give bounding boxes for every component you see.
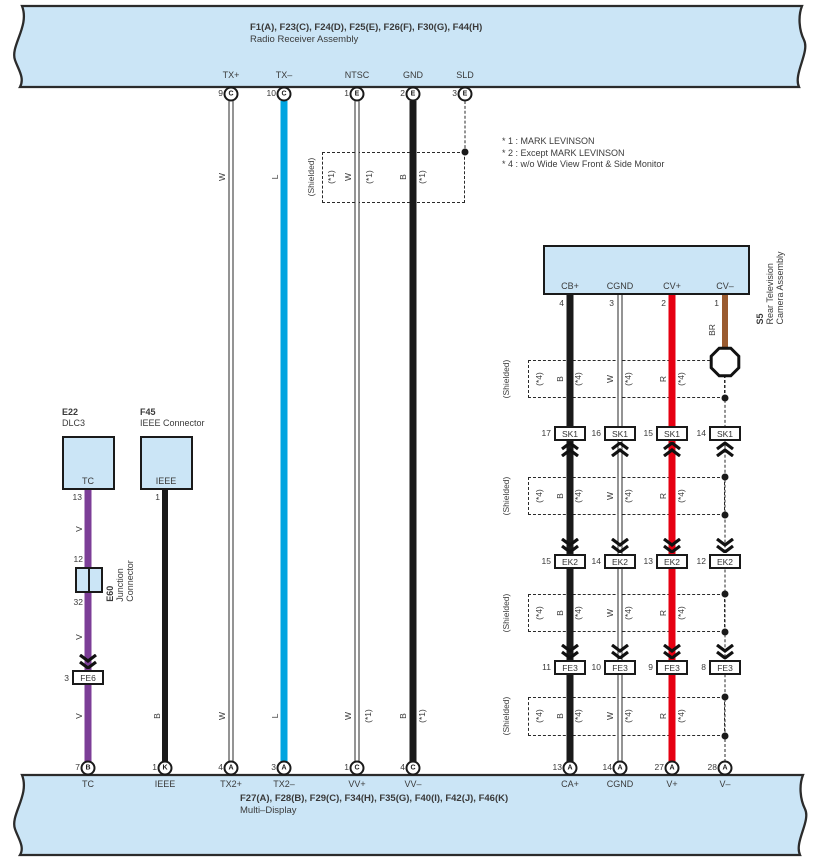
wire-color-label: W: [605, 712, 615, 720]
wire-sld-dashed: [465, 101, 466, 153]
note-wo-wide-view: * 4 : w/o Wide View Front & Side Monitor: [502, 159, 664, 171]
connector-sk1: SK1: [604, 426, 636, 441]
top-pin-connector-circle: E: [458, 87, 473, 102]
connector-sk1: SK1: [656, 426, 688, 441]
bottom-pin-label: TC: [82, 779, 94, 789]
wire-color-label: BR: [707, 324, 717, 336]
camera-id: S5: [755, 251, 765, 324]
junction-dot: [722, 694, 729, 701]
condition-label: (*4): [534, 606, 544, 620]
chevron-up-icon: [609, 442, 631, 457]
bottom-pin-connector-circle: A: [224, 761, 239, 776]
sk1-pin-number: 14: [697, 428, 706, 438]
junction-name-line2: Connector: [125, 560, 135, 602]
condition-label: (*1): [326, 170, 336, 184]
camera-pin-label: CV–: [716, 281, 734, 291]
camera-pin-number: 4: [559, 298, 564, 308]
chevron-up-icon: [559, 442, 581, 457]
junction-dot: [722, 733, 729, 740]
bottom-pin-connector-circle: A: [613, 761, 628, 776]
top-pin-connector-circle: C: [224, 87, 239, 102]
wire-ieee-black: [162, 489, 168, 762]
condition-label: (*4): [534, 489, 544, 503]
bottom-pin-number: 14: [603, 762, 612, 772]
chevron-down-icon: [714, 644, 736, 659]
fe3-pin-number: 9: [648, 662, 653, 672]
sk1-pin-number: 17: [542, 428, 551, 438]
chevron-up-icon: [714, 442, 736, 457]
wire-color-label: V: [74, 526, 84, 532]
condition-label: (*1): [417, 170, 427, 184]
fe6-pin-number: 3: [64, 673, 69, 683]
chevron-down-icon: [609, 644, 631, 659]
wire-color-label: B: [152, 713, 162, 719]
wire-color-label: B: [555, 713, 565, 719]
junction-dot: [722, 512, 729, 519]
wire-color-label: W: [343, 712, 353, 720]
junction-dot: [722, 629, 729, 636]
shielded-label: (Shielded): [501, 360, 511, 399]
condition-label: (*4): [534, 372, 544, 386]
wire-color-label: R: [658, 610, 668, 616]
bottom-pin-label: V–: [719, 779, 730, 789]
junction-dot: [462, 149, 469, 156]
top-pin-connector-circle: C: [277, 87, 292, 102]
ek2-pin-number: 12: [697, 556, 706, 566]
condition-label: (*4): [573, 606, 583, 620]
wire-color-label: R: [658, 376, 668, 382]
top-pin-number: 1: [344, 88, 349, 98]
top-pin-number: 3: [452, 88, 457, 98]
junction-id: E60: [105, 560, 115, 602]
condition-label: (*4): [676, 709, 686, 723]
wire-tx-minus-cyan: [281, 101, 288, 762]
bottom-pin-number: 1: [152, 762, 157, 772]
wire-color-label: L: [270, 175, 280, 180]
connector-fe3: FE3: [709, 660, 741, 675]
chevron-down-icon: [77, 654, 99, 669]
condition-label: (*4): [623, 709, 633, 723]
wire-ntsc-white: [355, 101, 360, 762]
sk1-pin-number: 16: [592, 428, 601, 438]
chevron-down-icon: [609, 538, 631, 553]
wire-color-label: W: [217, 173, 227, 181]
notes-block: * 1 : MARK LEVINSON * 2 : Except MARK LE…: [502, 136, 664, 171]
junction-pin-top: 12: [74, 554, 83, 564]
wire-color-label: W: [605, 375, 615, 383]
connector-ek2: EK2: [604, 554, 636, 569]
top-pin-label: TX+: [223, 70, 240, 80]
wire-color-label: V: [74, 634, 84, 640]
chevron-down-icon: [661, 644, 683, 659]
bottom-pin-number: 1: [344, 762, 349, 772]
shielded-label: (Shielded): [501, 594, 511, 633]
camera-pin-label: CV+: [663, 281, 681, 291]
top-pin-label: NTSC: [345, 70, 370, 80]
junction-pin-bottom: 32: [74, 597, 83, 607]
wire-color-label: L: [270, 714, 280, 719]
wire-color-label: W: [217, 712, 227, 720]
f45-terminal-label: IEEE: [156, 476, 177, 486]
bottom-pin-connector-circle: K: [158, 761, 173, 776]
top-pin-number: 10: [267, 88, 276, 98]
bottom-pin-connector-circle: C: [406, 761, 421, 776]
condition-label: (*4): [573, 489, 583, 503]
top-pin-number: 9: [218, 88, 223, 98]
fe3-pin-number: 8: [701, 662, 706, 672]
condition-label: (*4): [623, 372, 633, 386]
condition-label: (*4): [534, 709, 544, 723]
radio-receiver-banner: [0, 0, 814, 95]
f45-pin-number: 1: [155, 492, 160, 502]
chevron-down-icon: [559, 538, 581, 553]
camera-assembly-name: S5 Rear Television Camera Assembly: [755, 251, 785, 324]
bottom-pin-connector-circle: C: [350, 761, 365, 776]
bottom-pin-connector-circle: A: [563, 761, 578, 776]
connector-sk1: SK1: [554, 426, 586, 441]
connector-ek2: EK2: [554, 554, 586, 569]
bottom-pin-label: IEEE: [155, 779, 176, 789]
camera-name-line2: Camera Assembly: [775, 251, 785, 324]
wire-gnd-black: [410, 101, 417, 762]
camera-name-line1: Rear Television: [765, 251, 775, 324]
shielded-label: (Shielded): [306, 158, 316, 197]
bottom-pin-number: 28: [708, 762, 717, 772]
ek2-pin-number: 13: [644, 556, 653, 566]
junction-dot: [722, 591, 729, 598]
connector-sk1: SK1: [709, 426, 741, 441]
camera-pin-number: 1: [714, 298, 719, 308]
octagon-connector-icon: [708, 345, 742, 379]
bottom-pin-connector-circle: A: [277, 761, 292, 776]
wire-color-label: B: [398, 713, 408, 719]
chevron-down-icon: [661, 538, 683, 553]
wire-color-label: R: [658, 713, 668, 719]
condition-label: (*1): [364, 170, 374, 184]
connector-fe3: FE3: [656, 660, 688, 675]
bottom-pin-label: CGND: [607, 779, 634, 789]
bottom-banner-title: F27(A), F28(B), F29(C), F34(H), F35(G), …: [240, 793, 508, 804]
wire-cv-minus-brown: [722, 294, 728, 349]
shielded-label: (Shielded): [501, 477, 511, 516]
junction-dot: [722, 395, 729, 402]
condition-label: (*1): [417, 709, 427, 723]
ek2-pin-number: 14: [592, 556, 601, 566]
junction-dot: [722, 474, 729, 481]
bottom-pin-connector-circle: A: [665, 761, 680, 776]
bottom-banner-subtitle: Multi–Display: [240, 805, 297, 816]
bottom-pin-label: VV+: [348, 779, 365, 789]
top-pin-connector-circle: E: [406, 87, 421, 102]
wire-color-label: W: [343, 173, 353, 181]
top-pin-number: 2: [400, 88, 405, 98]
top-pin-label: SLD: [456, 70, 474, 80]
wire-cgnd-white: [618, 294, 623, 762]
e22-name: DLC3: [62, 418, 85, 428]
wire-v-plus-red: [669, 294, 676, 762]
camera-pin-label: CB+: [561, 281, 579, 291]
wire-color-label: W: [605, 609, 615, 617]
chevron-down-icon: [559, 644, 581, 659]
wire-tx-plus-white: [229, 101, 234, 762]
junction-connector-name: E60 Junction Connector: [105, 560, 135, 602]
top-banner-title: F1(A), F23(C), F24(D), F25(E), F26(F), F…: [250, 22, 482, 33]
camera-pin-label: CGND: [607, 281, 634, 291]
note-except-mark-levinson: * 2 : Except MARK LEVINSON: [502, 148, 664, 160]
top-banner-subtitle: Radio Receiver Assembly: [250, 34, 358, 45]
bottom-pin-connector-circle: B: [81, 761, 96, 776]
wire-color-label: B: [555, 376, 565, 382]
camera-pin-number: 3: [609, 298, 614, 308]
condition-label: (*4): [676, 606, 686, 620]
bottom-pin-label: TX2+: [220, 779, 242, 789]
fe3-pin-number: 11: [542, 662, 551, 672]
condition-label: (*4): [676, 372, 686, 386]
e22-id: E22: [62, 407, 78, 417]
sk1-pin-number: 15: [644, 428, 653, 438]
wire-color-label: B: [555, 610, 565, 616]
junction-name-line1: Junction: [115, 560, 125, 602]
wire-color-label: R: [658, 493, 668, 499]
connector-fe3: FE3: [554, 660, 586, 675]
condition-label: (*4): [623, 489, 633, 503]
camera-pin-number: 2: [661, 298, 666, 308]
chevron-up-icon: [661, 442, 683, 457]
junction-connector-box: [75, 567, 103, 593]
connector-ek2: EK2: [709, 554, 741, 569]
bottom-pin-label: CA+: [561, 779, 579, 789]
connector-ek2: EK2: [656, 554, 688, 569]
chevron-down-icon: [714, 538, 736, 553]
bottom-pin-label: TX2–: [273, 779, 295, 789]
connector-fe6: FE6: [72, 670, 104, 685]
fe3-pin-number: 10: [592, 662, 601, 672]
wire-color-label: W: [605, 492, 615, 500]
shielded-label: (Shielded): [501, 697, 511, 736]
bottom-pin-number: 13: [553, 762, 562, 772]
wire-color-label: B: [398, 174, 408, 180]
condition-label: (*1): [363, 709, 373, 723]
bottom-pin-label: VV–: [404, 779, 421, 789]
wiring-diagram: F1(A), F23(C), F24(D), F25(E), F26(F), F…: [0, 0, 814, 865]
connector-fe3: FE3: [604, 660, 636, 675]
wire-ca-plus-black: [567, 294, 574, 762]
condition-label: (*4): [676, 489, 686, 503]
condition-label: (*4): [573, 709, 583, 723]
wire-color-label: B: [555, 493, 565, 499]
top-pin-connector-circle: E: [350, 87, 365, 102]
f45-id: F45: [140, 407, 156, 417]
bottom-pin-number: 3: [271, 762, 276, 772]
bottom-pin-label: V+: [666, 779, 677, 789]
top-pin-label: GND: [403, 70, 423, 80]
f45-name: IEEE Connector: [140, 418, 205, 428]
condition-label: (*4): [623, 606, 633, 620]
junction-divider: [88, 569, 90, 591]
e22-pin-number: 13: [73, 492, 82, 502]
bottom-pin-number: 27: [655, 762, 664, 772]
top-pin-label: TX–: [276, 70, 293, 80]
wire-tc-purple: [85, 489, 92, 762]
bottom-pin-number: 4: [400, 762, 405, 772]
note-mark-levinson: * 1 : MARK LEVINSON: [502, 136, 664, 148]
e22-terminal-label: TC: [82, 476, 94, 486]
bottom-pin-number: 7: [75, 762, 80, 772]
bottom-pin-number: 4: [218, 762, 223, 772]
wire-color-label: V: [74, 713, 84, 719]
bottom-pin-connector-circle: A: [718, 761, 733, 776]
ek2-pin-number: 15: [542, 556, 551, 566]
condition-label: (*4): [573, 372, 583, 386]
